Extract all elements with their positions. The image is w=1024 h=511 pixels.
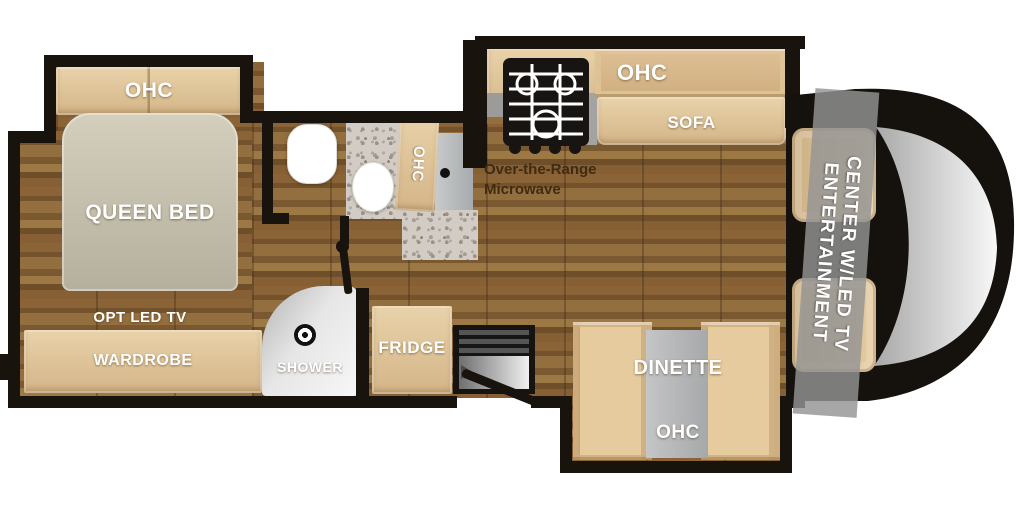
- kitchen-ohc-label: OHC: [595, 48, 786, 97]
- queen-bed-label: QUEEN BED: [62, 198, 238, 228]
- wardrobe-label: WARDROBE: [24, 348, 262, 374]
- sofa-label: SOFA: [597, 106, 786, 140]
- otr-microwave-label: Over-the-Range Microwave: [484, 160, 634, 200]
- fridge-label: FRIDGE: [372, 336, 452, 360]
- bath-ohc-label: OHC: [403, 135, 434, 192]
- opt-led-tv-label: OPT LED TV: [70, 306, 210, 328]
- shower-label: SHOWER: [262, 356, 358, 378]
- otr-microwave-line1: Over-the-Range: [484, 160, 634, 180]
- dinette-ohc-label: OHC: [610, 420, 746, 446]
- otr-microwave-line2: Microwave: [484, 180, 634, 200]
- rv-floorplan: ENTERTAINMENT CENTER W/LED TV OHC QUEEN …: [0, 0, 1024, 511]
- dinette-label: DINETTE: [586, 356, 770, 380]
- bedroom-ohc-label: OHC: [56, 67, 242, 115]
